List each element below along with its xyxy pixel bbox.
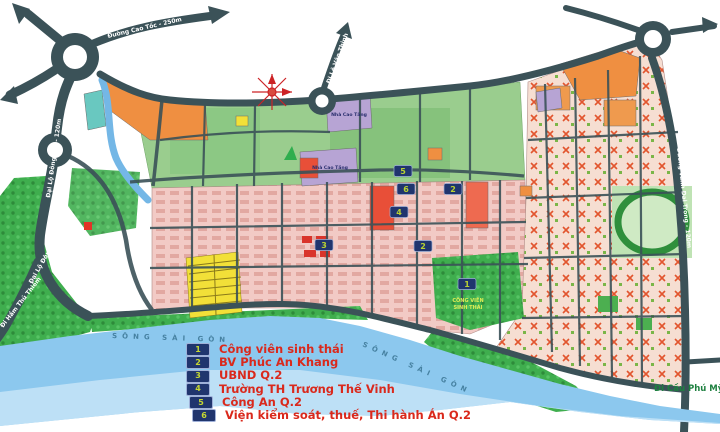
legend-row: 6 Viện kiểm soát, thuế, Thi hành Án Q.2 — [192, 410, 471, 422]
marker-number: 2 — [450, 185, 456, 194]
teal-parcel — [84, 90, 106, 130]
legend-label: Viện kiểm soát, thuế, Thi hành Án Q.2 — [225, 410, 471, 422]
map-marker: 2 — [444, 184, 462, 195]
map-marker: 6 — [397, 184, 415, 195]
map-marker: 1 — [458, 279, 476, 290]
r3-arm-topleft — [566, 8, 638, 30]
planning-map: Đường Cao Tốc - 250m Đại Lộ Đông Tây - 1… — [0, 0, 720, 432]
legend-row: 4 Trường TH Trương Thế Vinh — [186, 384, 471, 396]
arrow — [702, 17, 718, 33]
legend-label: Trường TH Trương Thế Vinh — [219, 384, 395, 396]
yellow-parcel — [236, 116, 248, 126]
legend-number-badge: 6 — [192, 409, 216, 422]
map-marker: 2 — [414, 241, 432, 252]
legend-number-badge: 3 — [186, 370, 210, 383]
r1-arm-downleft — [10, 70, 55, 95]
legend-row: 2 BV Phúc An Khang — [186, 357, 471, 369]
roundabout-island — [644, 30, 662, 48]
legend-number-badge: 1 — [186, 343, 210, 356]
marker-number: 3 — [321, 241, 327, 250]
legend-number-badge: 5 — [189, 396, 213, 409]
legend-label: BV Phúc An Khang — [219, 357, 338, 369]
road-label-cau-phu-my: Đi Cầu Phú Mỹ - Q.7 — [654, 383, 720, 394]
legend-number-badge: 4 — [186, 383, 210, 396]
legend-row: 3 UBND Q.2 — [186, 370, 471, 382]
map-marker: 3 — [315, 240, 333, 251]
legend-panel: 1 Công viên sinh thái 2 BV Phúc An Khang… — [186, 344, 471, 423]
arrow — [208, 6, 230, 24]
r1-arm-upleft — [28, 14, 62, 42]
legend-row: 1 Công viên sinh thái — [186, 344, 471, 356]
legend-number-badge: 2 — [186, 356, 210, 369]
legend-label: Công An Q.2 — [222, 397, 302, 409]
legend-label: Công viên sinh thái — [219, 344, 344, 356]
marker-number: 4 — [396, 208, 402, 217]
legend-label: UBND Q.2 — [219, 370, 282, 382]
park-label-line2: SINH THÁI — [454, 304, 483, 311]
marker-number: 5 — [400, 167, 406, 176]
east-stub — [686, 360, 720, 362]
park-label-line1: CÔNG VIÊN — [452, 296, 483, 304]
map-marker: 4 — [390, 207, 408, 218]
marker-number: 6 — [403, 185, 409, 194]
red-parcel — [466, 182, 488, 228]
roundabout-island — [63, 45, 87, 69]
road-label-cao-toc: Đường Cao Tốc - 250m — [107, 16, 183, 40]
marker-number: 1 — [464, 280, 470, 289]
orange-parcel — [520, 186, 532, 196]
green-parcel — [636, 318, 652, 330]
roundabout-island — [316, 95, 329, 108]
road-label-le-van-thinh: Đi Lê Văn Thịnh — [325, 32, 350, 84]
legend-row: 5 Công An Q.2 — [189, 397, 471, 409]
orange-parcel — [428, 148, 442, 160]
marker-number: 2 — [420, 242, 426, 251]
lavender-parcel — [536, 88, 562, 112]
green-parcel — [598, 296, 618, 312]
red-flag — [84, 222, 92, 230]
map-marker: 5 — [394, 166, 412, 177]
